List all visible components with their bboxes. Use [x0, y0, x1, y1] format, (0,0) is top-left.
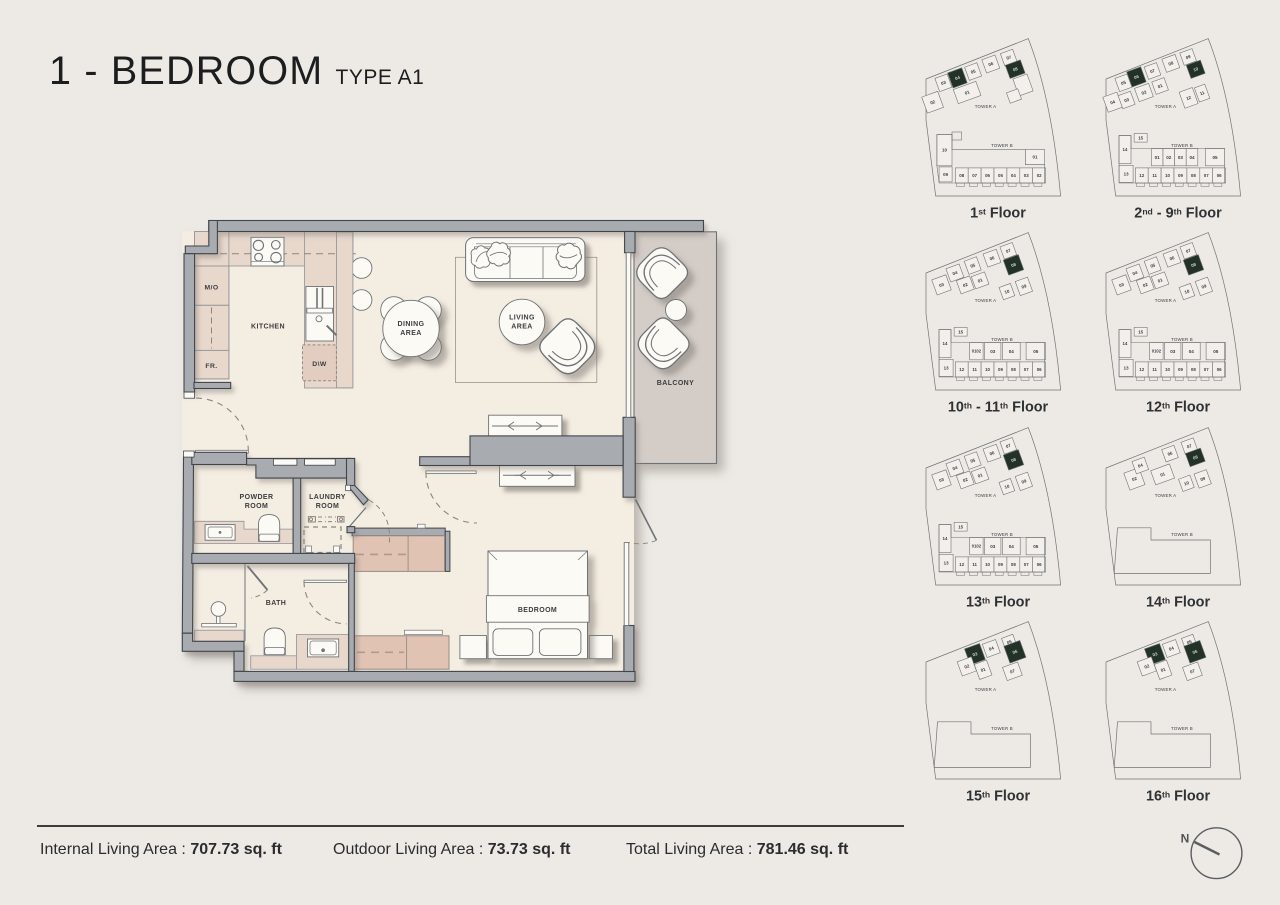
svg-text:03: 03 [1024, 173, 1029, 178]
svg-text:14: 14 [1123, 341, 1128, 346]
svg-text:04: 04 [1189, 349, 1195, 354]
svg-text:06: 06 [1037, 367, 1042, 372]
svg-text:08: 08 [1191, 173, 1196, 178]
svg-text:11: 11 [972, 562, 977, 567]
svg-text:TOWER A: TOWER A [1155, 104, 1177, 109]
svg-text:04: 04 [1009, 349, 1015, 354]
svg-text:11: 11 [1152, 367, 1157, 372]
svg-text:06: 06 [1217, 367, 1222, 372]
svg-text:TOWER A: TOWER A [975, 298, 997, 303]
svg-text:TOWER B: TOWER B [1171, 532, 1193, 537]
svg-text:08: 08 [1191, 367, 1196, 372]
svg-text:15: 15 [1138, 135, 1143, 140]
svg-text:07: 07 [1204, 173, 1209, 178]
svg-text:11: 11 [1152, 173, 1157, 178]
svg-text:02: 02 [1166, 155, 1172, 160]
svg-text:TOWER B: TOWER B [1171, 726, 1193, 731]
svg-text:TOWER B: TOWER B [991, 726, 1013, 731]
svg-text:07: 07 [1024, 367, 1029, 372]
svg-text:14: 14 [943, 341, 948, 346]
svg-text:0102: 0102 [1152, 349, 1162, 354]
svg-text:2nd - 9th Floor: 2nd - 9th Floor [1134, 206, 1222, 222]
svg-text:15: 15 [1138, 329, 1143, 334]
svg-text:05: 05 [1033, 544, 1039, 549]
svg-text:09: 09 [1178, 367, 1183, 372]
svg-text:03: 03 [990, 349, 996, 354]
svg-text:10: 10 [985, 562, 990, 567]
svg-text:0102: 0102 [972, 349, 982, 354]
svg-text:05: 05 [1033, 349, 1039, 354]
svg-text:10: 10 [985, 367, 990, 372]
svg-text:09: 09 [998, 562, 1003, 567]
svg-text:04: 04 [1189, 155, 1195, 160]
svg-text:07: 07 [1024, 562, 1029, 567]
svg-text:14: 14 [943, 536, 948, 541]
svg-text:13th Floor: 13th Floor [966, 595, 1031, 611]
svg-text:14: 14 [1123, 147, 1128, 152]
svg-text:08: 08 [1011, 562, 1016, 567]
svg-text:09: 09 [943, 172, 948, 177]
svg-text:04: 04 [1009, 544, 1015, 549]
svg-text:N: N [1181, 832, 1190, 846]
svg-text:05: 05 [998, 173, 1003, 178]
svg-text:06: 06 [1037, 562, 1042, 567]
svg-text:13: 13 [944, 365, 949, 370]
svg-text:12: 12 [1139, 173, 1144, 178]
svg-text:TOWER B: TOWER B [991, 337, 1013, 342]
svg-text:10: 10 [1165, 367, 1170, 372]
svg-text:03: 03 [990, 544, 996, 549]
svg-text:04: 04 [1011, 173, 1016, 178]
svg-text:15th Floor: 15th Floor [966, 789, 1031, 805]
svg-text:TOWER A: TOWER A [975, 493, 997, 498]
svg-text:TOWER A: TOWER A [1155, 687, 1177, 692]
svg-text:12: 12 [959, 562, 964, 567]
svg-text:09: 09 [1178, 173, 1183, 178]
svg-text:TOWER B: TOWER B [1171, 337, 1193, 342]
svg-text:TOWER A: TOWER A [975, 687, 997, 692]
svg-text:15: 15 [958, 329, 963, 334]
svg-text:13: 13 [1124, 171, 1129, 176]
svg-text:10: 10 [942, 148, 947, 153]
svg-text:TOWER A: TOWER A [1155, 493, 1177, 498]
svg-text:06: 06 [985, 173, 990, 178]
svg-text:05: 05 [1212, 155, 1218, 160]
svg-text:07: 07 [1204, 367, 1209, 372]
svg-text:05: 05 [1213, 349, 1219, 354]
svg-text:03: 03 [1178, 155, 1184, 160]
svg-text:01: 01 [1155, 155, 1161, 160]
svg-text:TOWER B: TOWER B [1171, 143, 1193, 148]
svg-text:03: 03 [1170, 349, 1176, 354]
svg-text:TOWER B: TOWER B [991, 143, 1013, 148]
svg-text:14th Floor: 14th Floor [1146, 595, 1211, 611]
svg-text:0102: 0102 [972, 544, 982, 549]
svg-text:12th Floor: 12th Floor [1146, 400, 1211, 416]
svg-text:13: 13 [944, 560, 949, 565]
svg-text:10: 10 [1165, 173, 1170, 178]
svg-text:12: 12 [959, 367, 964, 372]
svg-text:10th - 11th Floor: 10th - 11th Floor [948, 400, 1049, 416]
svg-text:06: 06 [1217, 173, 1222, 178]
svg-text:02: 02 [1037, 173, 1042, 178]
svg-text:11: 11 [972, 367, 977, 372]
svg-text:12: 12 [1139, 367, 1144, 372]
svg-text:08: 08 [959, 173, 964, 178]
svg-text:TOWER A: TOWER A [1155, 298, 1177, 303]
svg-text:13: 13 [1124, 365, 1129, 370]
svg-text:16th Floor: 16th Floor [1146, 789, 1211, 805]
svg-text:TOWER B: TOWER B [991, 532, 1013, 537]
svg-text:07: 07 [972, 173, 977, 178]
svg-text:TOWER A: TOWER A [975, 104, 997, 109]
svg-text:08: 08 [1011, 367, 1016, 372]
svg-text:15: 15 [958, 524, 963, 529]
svg-text:1st Floor: 1st Floor [970, 206, 1026, 222]
svg-text:09: 09 [998, 367, 1003, 372]
svg-text:01: 01 [1033, 155, 1038, 160]
